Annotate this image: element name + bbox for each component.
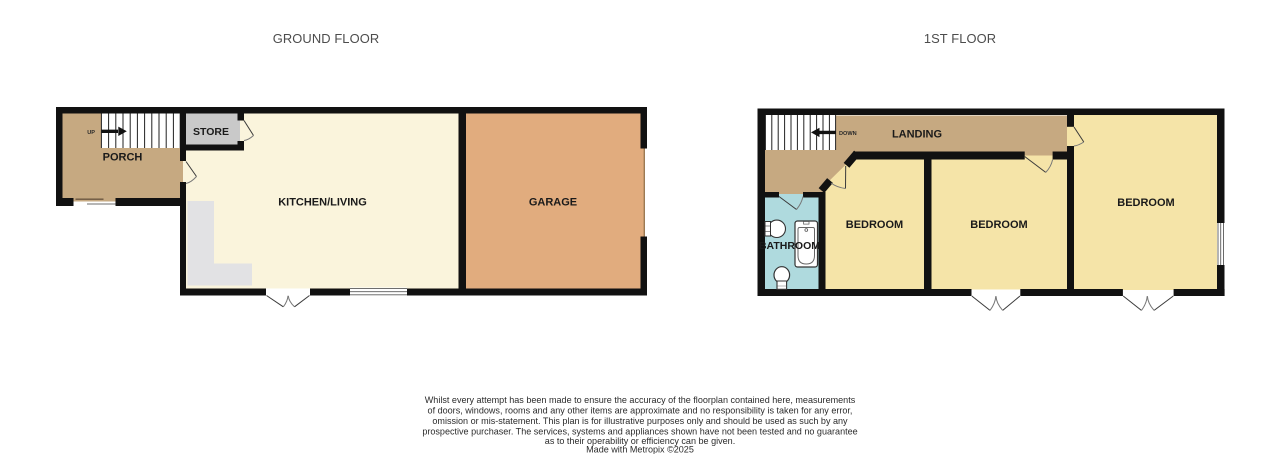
svg-text:UP: UP [87, 130, 95, 136]
svg-text:BATHROOM: BATHROOM [759, 240, 820, 252]
svg-text:STORE: STORE [193, 126, 229, 138]
svg-text:omission or mis-statement. Thi: omission or mis-statement. This plan is … [432, 416, 848, 426]
svg-text:prospective purchaser. The ser: prospective purchaser. The services, sys… [422, 426, 857, 436]
svg-text:GROUND FLOOR: GROUND FLOOR [273, 31, 379, 46]
svg-text:GARAGE: GARAGE [529, 197, 577, 209]
svg-text:BEDROOM: BEDROOM [846, 219, 903, 231]
svg-text:LANDING: LANDING [892, 129, 942, 141]
svg-text:BEDROOM: BEDROOM [970, 219, 1027, 231]
svg-text:Whilst every attempt has been: Whilst every attempt has been made to en… [425, 395, 856, 405]
svg-text:BEDROOM: BEDROOM [1117, 197, 1174, 209]
svg-text:1ST FLOOR: 1ST FLOOR [924, 31, 996, 46]
svg-text:Made with Metropix ©2025: Made with Metropix ©2025 [586, 445, 694, 454]
svg-text:of doors, windows, rooms and a: of doors, windows, rooms and any other i… [428, 405, 853, 415]
svg-text:DOWN: DOWN [839, 131, 857, 137]
svg-text:KITCHEN/LIVING: KITCHEN/LIVING [278, 197, 367, 209]
svg-text:PORCH: PORCH [103, 152, 143, 164]
